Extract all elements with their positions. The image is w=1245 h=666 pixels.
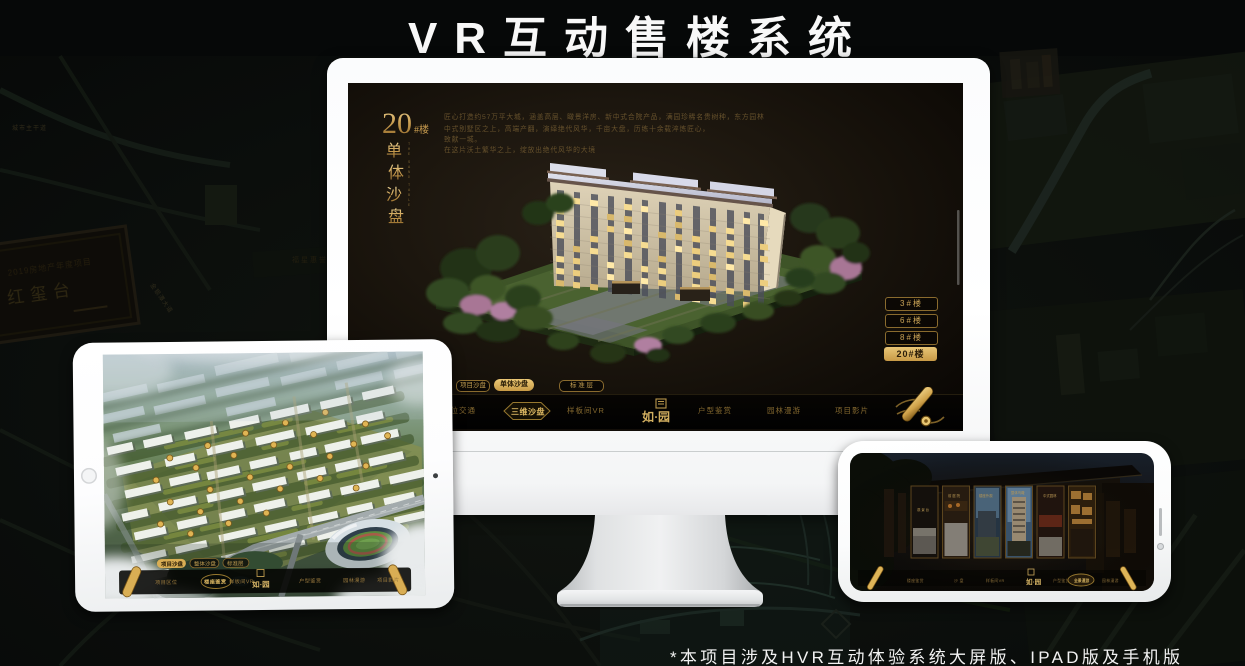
svg-text:项目区位: 项目区位: [155, 578, 177, 586]
svg-text:三维沙盘: 三维沙盘: [511, 407, 545, 417]
svg-text:福星惠誉: 福星惠誉: [292, 255, 328, 264]
svg-text:如·园: 如·园: [1026, 577, 1042, 586]
svg-text:如·园: 如·园: [642, 409, 670, 424]
svg-text:单: 单: [386, 142, 402, 160]
svg-text:在这片沃土繁华之上，绽放出绝代风华的大境: 在这片沃土繁华之上，绽放出绝代风华的大境: [444, 145, 596, 154]
svg-text:观 景 台: 观 景 台: [917, 507, 930, 512]
svg-text:园林漫游: 园林漫游: [1102, 578, 1119, 583]
svg-text:沙 盘: 沙 盘: [954, 578, 964, 583]
svg-text:E: E: [408, 204, 410, 208]
svg-text:E: E: [408, 153, 410, 157]
svg-text:沙: 沙: [386, 187, 402, 204]
svg-text:20: 20: [382, 107, 412, 140]
svg-text:匠心打造约57万平大城，涵盖高层、瞰景洋房、新中式合院产品，: 匠心打造约57万平大城，涵盖高层、瞰景洋房、新中式合院产品，满园珍稀名贵树种，东…: [444, 112, 765, 121]
svg-text:楼座鉴赏: 楼座鉴赏: [204, 577, 227, 585]
svg-text:前 庭 院: 前 庭 院: [948, 493, 961, 498]
svg-text:户型鉴赏: 户型鉴赏: [1053, 578, 1070, 583]
svg-text:全景漫游: 全景漫游: [1073, 578, 1089, 583]
svg-text:园林漫游: 园林漫游: [343, 576, 365, 584]
svg-text:中式园林: 中式园林: [1043, 493, 1057, 498]
svg-text:样板间VR: 样板间VR: [229, 577, 254, 585]
svg-text:如·园: 如·园: [252, 579, 270, 589]
svg-text:H: H: [408, 148, 410, 152]
svg-text:楼座鉴赏: 楼座鉴赏: [907, 578, 924, 583]
svg-text:S: S: [408, 161, 410, 165]
svg-text:体: 体: [388, 164, 404, 182]
svg-text:致献一城。: 致献一城。: [444, 135, 482, 144]
svg-text:L: L: [408, 199, 410, 203]
svg-text:项目影片: 项目影片: [377, 576, 399, 584]
svg-text:整体沙盘: 整体沙盘: [194, 559, 217, 567]
svg-text:标准层: 标准层: [227, 559, 244, 567]
svg-text:户型鉴赏: 户型鉴赏: [299, 576, 321, 584]
svg-text:项目沙盘: 项目沙盘: [161, 560, 184, 568]
svg-text:城市主干道: 城市主干道: [12, 124, 47, 132]
svg-text:楼座外观: 楼座外观: [979, 493, 993, 498]
svg-text:盘: 盘: [388, 207, 404, 226]
svg-text:样板间VR: 样板间VR: [986, 578, 1005, 583]
svg-text:D: D: [408, 176, 410, 180]
svg-text:N: N: [408, 171, 410, 175]
svg-text:中式别墅区之上，高端产翻，演绎绝代风华，千亩大盘，历练十余载: 中式别墅区之上，高端产翻，演绎绝代风华，千亩大盘，历练十余载淬炼匠心，: [444, 124, 710, 133]
svg-text:整体鸟瞰: 整体鸟瞰: [1011, 490, 1025, 495]
svg-text:#楼: #楼: [414, 123, 429, 136]
